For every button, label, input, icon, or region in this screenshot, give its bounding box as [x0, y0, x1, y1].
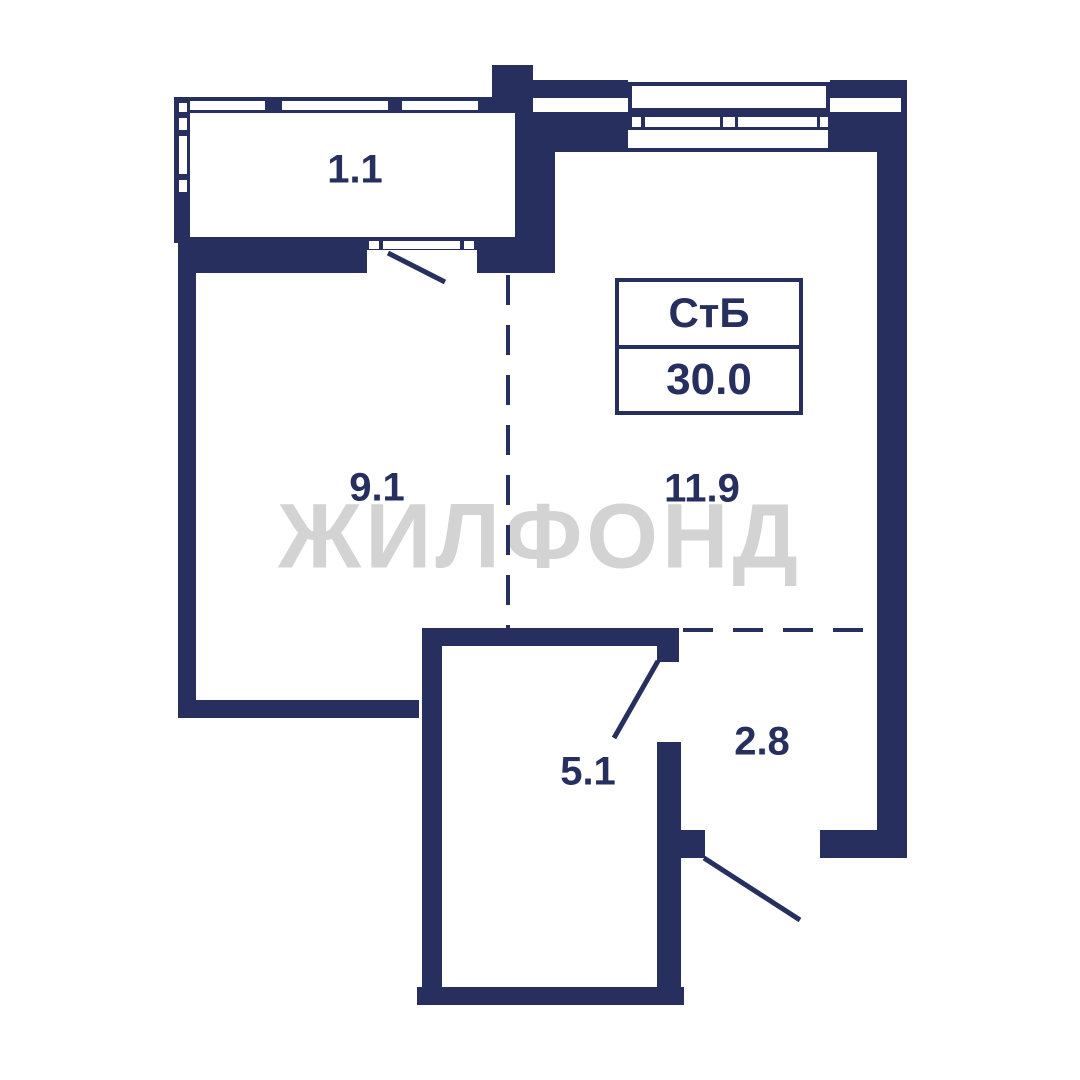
- bathroom-door-swing: [614, 661, 658, 738]
- room-label-bathroom: 5.1: [560, 750, 616, 795]
- room-label-room-right: 11.9: [664, 467, 740, 512]
- room-label-room-left: 9.1: [349, 466, 405, 511]
- plan-lines: [0, 0, 1080, 1080]
- room-label-hallway: 2.8: [734, 720, 790, 765]
- entry-door-swing: [704, 858, 800, 920]
- unit-info-box: СтБ 30.0: [615, 278, 803, 415]
- room-label-balcony: 1.1: [327, 148, 383, 193]
- floor-plan: ЖИЛФОНД: [0, 0, 1080, 1080]
- unit-area-value: 30.0: [619, 349, 799, 412]
- balcony-door-swing: [388, 253, 445, 282]
- unit-type-label: СтБ: [619, 282, 799, 345]
